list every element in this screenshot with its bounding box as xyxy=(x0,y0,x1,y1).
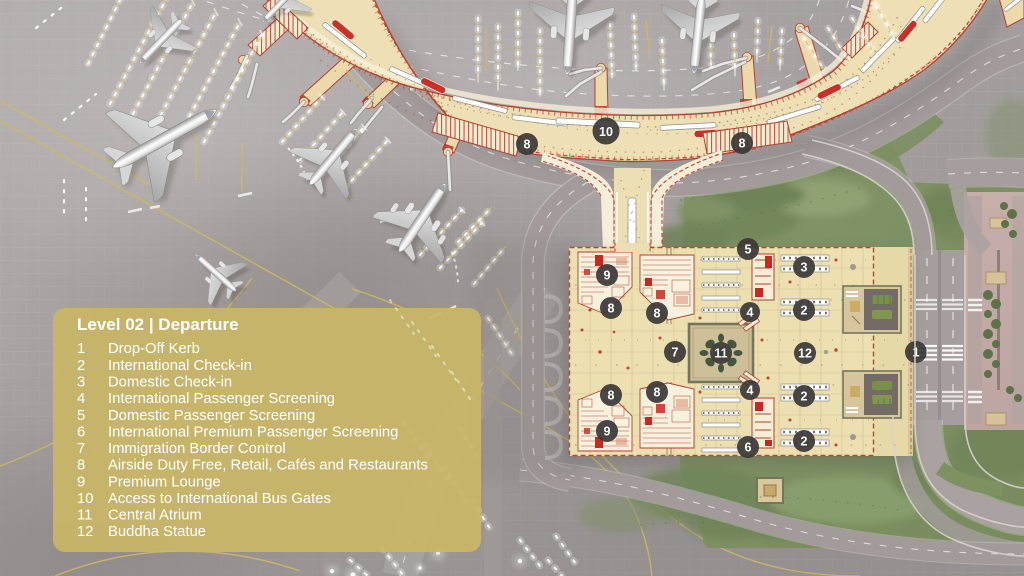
svg-text:International Passenger Screen: International Passenger Screening xyxy=(108,391,335,407)
svg-text:International Check-in: International Check-in xyxy=(108,358,252,374)
svg-text:2: 2 xyxy=(801,435,808,449)
svg-text:8: 8 xyxy=(608,389,615,403)
svg-text:8: 8 xyxy=(739,137,746,151)
svg-text:12: 12 xyxy=(798,347,812,361)
svg-text:3: 3 xyxy=(77,375,85,391)
svg-text:2: 2 xyxy=(801,390,808,404)
svg-text:8: 8 xyxy=(608,302,615,316)
svg-text:3: 3 xyxy=(801,261,808,275)
svg-text:1: 1 xyxy=(913,346,920,360)
svg-text:4: 4 xyxy=(747,306,754,320)
svg-text:Domestic Check-in: Domestic Check-in xyxy=(108,375,232,391)
svg-text:7: 7 xyxy=(77,441,85,457)
svg-text:4: 4 xyxy=(747,384,754,398)
svg-text:8: 8 xyxy=(77,458,85,474)
svg-text:8: 8 xyxy=(654,307,661,321)
svg-text:Drop-Off Kerb: Drop-Off Kerb xyxy=(108,341,200,357)
svg-text:2: 2 xyxy=(77,358,85,374)
svg-text:Premium Lounge: Premium Lounge xyxy=(108,474,221,490)
svg-text:11: 11 xyxy=(714,347,727,361)
svg-text:International Premium Passenge: International Premium Passenger Screenin… xyxy=(108,424,398,440)
svg-text:8: 8 xyxy=(524,138,531,152)
svg-text:4: 4 xyxy=(77,391,85,407)
svg-text:9: 9 xyxy=(604,269,611,283)
svg-text:9: 9 xyxy=(604,425,611,439)
svg-text:11: 11 xyxy=(77,508,92,524)
svg-text:Domestic Passenger Screening: Domestic Passenger Screening xyxy=(108,408,315,424)
svg-text:6: 6 xyxy=(77,424,85,440)
svg-text:Buddha Statue: Buddha Statue xyxy=(108,524,206,540)
svg-text:2: 2 xyxy=(801,304,808,318)
svg-text:Immigration Border Control: Immigration Border Control xyxy=(108,441,286,457)
svg-text:7: 7 xyxy=(672,346,679,360)
svg-text:8: 8 xyxy=(654,386,661,400)
svg-text:5: 5 xyxy=(745,243,752,257)
svg-text:1: 1 xyxy=(77,341,85,357)
svg-text:Level 02 | Departure: Level 02 | Departure xyxy=(77,315,239,334)
svg-text:5: 5 xyxy=(77,408,85,424)
svg-text:6: 6 xyxy=(745,441,752,455)
svg-text:12: 12 xyxy=(77,524,93,540)
svg-text:10: 10 xyxy=(599,125,613,139)
svg-text:Access to International Bus Ga: Access to International Bus Gates xyxy=(108,491,331,507)
svg-text:10: 10 xyxy=(77,491,93,507)
svg-text:Airside Duty Free, Retail, Caf: Airside Duty Free, Retail, Cafés and Res… xyxy=(108,458,428,474)
svg-text:Central Atrium: Central Atrium xyxy=(108,508,202,524)
svg-text:9: 9 xyxy=(77,474,85,490)
